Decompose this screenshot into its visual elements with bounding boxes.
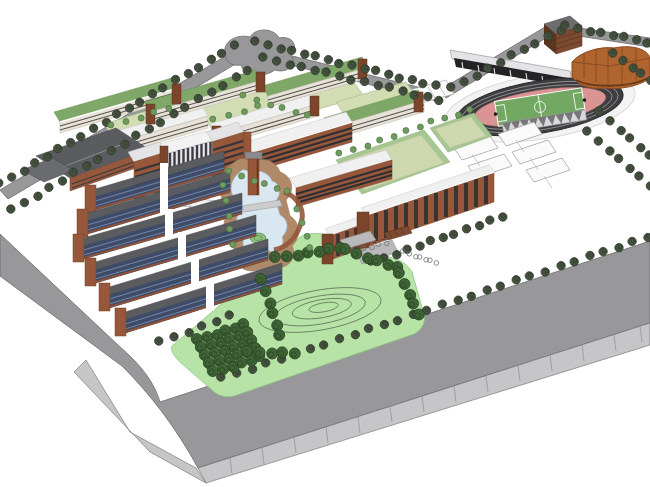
- perimeter-trees-nw-inner: [94, 155, 102, 163]
- park-hill-west-trees: [255, 274, 266, 285]
- field-border-trees-1: [350, 147, 356, 153]
- north-road-trees-outer: [385, 70, 393, 78]
- northeast-corner-trees: [620, 32, 628, 40]
- park-hill-north-trees-1: [269, 252, 280, 263]
- northeast-corner-trees: [597, 28, 605, 36]
- north-road-trees-outer: [277, 45, 285, 53]
- field-border-trees-1: [377, 137, 383, 143]
- park-hill-east-trees: [393, 268, 404, 279]
- north-road-trees-outer: [432, 81, 440, 89]
- northeast-corner-trees: [561, 21, 569, 29]
- perimeter-trees-nw-inner: [132, 131, 140, 139]
- courtyard-trees-2: [240, 92, 246, 98]
- perimeter-trees-nw-inner: [181, 103, 189, 111]
- main-road-trees: [380, 320, 388, 328]
- stair-tower: [172, 84, 181, 104]
- north-road-trees-inner: [259, 53, 267, 61]
- park-south-trees: [241, 346, 252, 357]
- north-road-trees-inner: [435, 96, 443, 104]
- field-border-trees-1: [403, 128, 409, 134]
- main-road-trees: [615, 244, 623, 252]
- courtyard-trees-2: [304, 112, 310, 118]
- northeast-corner-trees: [643, 39, 650, 47]
- perimeter-trees-nw-inner: [232, 73, 240, 81]
- northeast-corner-trees: [586, 27, 594, 35]
- dorm-end-block: [99, 283, 110, 311]
- perimeter-trees-nw-inner: [7, 205, 15, 213]
- perimeter-trees-nw-outer: [184, 69, 192, 77]
- main-road-trees: [483, 286, 491, 294]
- clock-tower-cap: [245, 152, 262, 159]
- park-hill-north-trees-1: [281, 251, 292, 262]
- north-road-trees-inner: [399, 87, 407, 95]
- row-gap: [206, 281, 214, 311]
- north-road-trees-outer: [251, 37, 259, 45]
- stadium-east-trees-1: [625, 134, 633, 142]
- north-road-trees-outer: [287, 46, 295, 54]
- perimeter-trees-nw-outer: [43, 153, 51, 161]
- perimeter-trees-nw-inner: [156, 118, 164, 126]
- park-hill-east-trees: [413, 309, 424, 320]
- pond-west-trees: [220, 182, 226, 188]
- bike-racks-east: [434, 261, 439, 266]
- field-border-trees-2: [428, 118, 434, 124]
- row-gap: [191, 256, 199, 286]
- main-road-trees: [557, 262, 565, 270]
- perimeter-trees-nw-outer: [20, 167, 28, 175]
- stadium-north-trees: [544, 32, 552, 40]
- perimeter-trees-nw-outer: [54, 144, 62, 152]
- northeast-corner-trees: [574, 24, 582, 32]
- stadium-north-trees: [460, 77, 468, 85]
- perimeter-trees-nw-inner: [20, 198, 28, 206]
- stadium-east-trees-1: [617, 126, 625, 134]
- stair-tower: [256, 72, 265, 92]
- plaza-trees-south: [239, 173, 245, 179]
- north-road-trees-inner: [385, 83, 393, 91]
- north-road-trees-inner: [424, 92, 432, 100]
- pond-west-trees: [227, 226, 233, 232]
- perimeter-trees-nw-inner: [58, 177, 66, 185]
- park-hill-east-trees: [399, 279, 410, 290]
- park-grove-row-5: [218, 364, 229, 375]
- park-grove-row-5: [207, 366, 218, 377]
- dorm-east-walkway-trees: [439, 233, 447, 241]
- pond-west-trees: [226, 213, 232, 219]
- perimeter-trees-nw-outer: [112, 110, 120, 118]
- perimeter-trees-nw-outer: [207, 55, 215, 63]
- campus-render: [0, 0, 650, 487]
- north-road-trees-inner: [410, 91, 418, 99]
- perimeter-trees-nw-inner: [121, 140, 129, 148]
- northeast-corner-trees: [610, 31, 618, 39]
- stadium-east-trees-2: [646, 182, 650, 190]
- park-west-edge-trees: [155, 337, 163, 345]
- park-hill-north-trees-2: [371, 255, 382, 266]
- courtyard-trees-2: [293, 110, 299, 116]
- perimeter-trees-nw-outer: [217, 49, 225, 57]
- east-boundary-trees: [629, 64, 637, 72]
- main-road-trees: [570, 258, 578, 266]
- perimeter-trees-nw-outer: [66, 138, 74, 146]
- stadium-north-trees: [531, 40, 539, 48]
- row-gap: [178, 232, 186, 262]
- north-road-trees-outer: [311, 52, 319, 60]
- park-hill-west-trees: [265, 298, 276, 309]
- north-road-trees-inner: [360, 77, 368, 85]
- stadium-east-trees-1: [645, 151, 650, 159]
- stadium-east-trees-1: [595, 107, 603, 115]
- north-road-trees-outer: [371, 66, 379, 74]
- north-road-trees-inner: [272, 57, 280, 65]
- north-road-trees-inner: [311, 66, 319, 74]
- northeast-corner-trees: [633, 36, 641, 44]
- field-border-trees-1: [391, 134, 397, 140]
- perimeter-trees-nw-inner: [69, 168, 77, 176]
- stadium-east-trees-2: [583, 127, 591, 135]
- stadium-east-trees-2: [626, 164, 634, 172]
- park-west-edge-trees: [225, 311, 233, 319]
- main-road-trees: [644, 233, 650, 241]
- park-hill-west-trees: [260, 286, 271, 297]
- park-west-edge-trees: [197, 322, 205, 330]
- north-road-trees-outer: [301, 50, 309, 58]
- park-hill-west-trees: [267, 308, 278, 319]
- field-border-trees-2: [442, 115, 448, 121]
- east-boundary-trees: [619, 56, 627, 64]
- stadium-east-trees-2: [614, 154, 622, 162]
- stadium-north-trees: [483, 64, 491, 72]
- entrance-plaza-canopy: [225, 30, 295, 75]
- stadium-east-trees-1: [637, 144, 645, 152]
- main-road-trees: [525, 272, 533, 280]
- pond-east-trees: [294, 206, 300, 212]
- plaza-trees-south: [261, 181, 267, 187]
- dorm-east-walkway-trees: [449, 230, 457, 238]
- dorm-east-walkway-trees: [475, 222, 483, 230]
- east-boundary-trees: [636, 69, 644, 77]
- north-road-trees-inner: [322, 68, 330, 76]
- north-road-trees-outer: [264, 41, 272, 49]
- main-road-trees: [599, 247, 607, 255]
- dorm-east-walkway-trees: [393, 251, 401, 259]
- park-grove-row-5: [236, 357, 247, 368]
- main-road-trees: [541, 268, 549, 276]
- courtyard-trees-3: [226, 112, 232, 118]
- courtyard-trees-1: [108, 122, 114, 128]
- dorm-east-walkway-trees: [499, 213, 507, 221]
- main-road-trees: [306, 345, 314, 353]
- perimeter-trees-nw-inner: [208, 88, 216, 96]
- stadium-north-trees: [520, 45, 528, 53]
- perimeter-trees-nw-outer: [77, 133, 85, 141]
- park-south-trees: [254, 347, 265, 358]
- dorm-east-walkway-trees: [486, 216, 494, 224]
- park-hill-north-trees-1: [323, 243, 334, 254]
- park-west-edge-trees: [170, 333, 178, 341]
- dorm-end-block: [85, 258, 96, 286]
- perimeter-trees-nw-inner: [243, 66, 251, 74]
- north-road-trees-inner: [297, 62, 305, 70]
- park-hill-north-trees-2: [351, 248, 362, 259]
- field-border-trees-2: [456, 112, 462, 118]
- courtyard-trees-2: [254, 97, 260, 103]
- main-road-trees: [319, 341, 327, 349]
- park-south-trees: [289, 348, 300, 359]
- courtyard-trees-1: [166, 106, 172, 112]
- perimeter-trees-nw-inner: [194, 94, 202, 102]
- park-south-trees: [267, 348, 278, 359]
- perimeter-trees-nw-outer: [31, 159, 39, 167]
- main-road-trees: [335, 334, 343, 342]
- perimeter-trees-nw-outer: [89, 124, 97, 132]
- plaza-trees-south: [226, 168, 232, 174]
- pond-east-trees: [299, 220, 305, 226]
- main-road-trees: [393, 317, 401, 325]
- north-road-trees-outer: [335, 59, 343, 67]
- courtyard-trees-3: [255, 103, 261, 109]
- stadium-east-trees-2: [594, 137, 602, 145]
- field-border-trees-2: [467, 107, 473, 113]
- main-road-trees: [248, 365, 256, 373]
- perimeter-trees-nw-inner: [145, 125, 153, 133]
- dorm-east-walkway-trees: [462, 225, 470, 233]
- north-road-trees-inner: [347, 76, 355, 84]
- park-hill-east-trees: [408, 298, 419, 309]
- main-road-trees: [351, 331, 359, 339]
- perimeter-trees-nw-outer: [125, 104, 133, 112]
- stadium-north-trees: [507, 51, 515, 59]
- stadium-east-trees-1: [606, 117, 614, 125]
- park-hill-west-trees: [272, 320, 283, 331]
- pond-west-trees: [223, 198, 229, 204]
- park-south-trees: [277, 347, 288, 358]
- main-road-trees: [496, 282, 504, 290]
- east-boundary-trees: [609, 49, 617, 57]
- perimeter-trees-nw-outer: [158, 84, 166, 92]
- plaza-trees-south: [251, 178, 257, 184]
- north-road-trees-outer: [361, 65, 369, 73]
- dorm-end-block: [77, 209, 88, 237]
- main-road-trees: [586, 251, 594, 259]
- north-road-trees-inner: [336, 72, 344, 80]
- main-road-trees: [454, 296, 462, 304]
- park-west-edge-trees: [213, 318, 221, 326]
- stadium-east-trees-2: [606, 147, 614, 155]
- pond-east-trees: [307, 245, 313, 251]
- main-road-trees: [512, 276, 520, 284]
- courtyard-trees-1: [123, 119, 129, 125]
- park-hill-north-trees-2: [339, 244, 350, 255]
- main-road-trees: [467, 292, 475, 300]
- stadium-east-trees-2: [635, 172, 643, 180]
- dorm-east-walkway-trees: [426, 236, 434, 244]
- north-road-trees-inner: [374, 81, 382, 89]
- courtyard-trees-2: [268, 102, 274, 108]
- pond-west-trees: [230, 242, 236, 248]
- perimeter-trees-nw-inner: [219, 82, 227, 90]
- field-border-trees-1: [417, 124, 423, 130]
- dorm-end-block: [115, 308, 126, 336]
- courtyard-trees-1: [151, 109, 157, 115]
- perimeter-trees-nw-outer: [194, 63, 202, 71]
- main-road-trees: [364, 324, 372, 332]
- dorm-east-walkway-trees: [416, 242, 424, 250]
- perimeter-trees-nw-outer: [0, 179, 3, 187]
- north-road-trees-outer: [419, 79, 427, 87]
- stadium-north-trees: [497, 59, 505, 67]
- perimeter-trees-nw-inner: [34, 192, 42, 200]
- courtyard-trees-2: [279, 105, 285, 111]
- north-road-trees-outer: [408, 75, 416, 83]
- north-road-trees-outer: [395, 74, 403, 82]
- courtyard-trees-3: [210, 116, 216, 122]
- perimeter-trees-nw-outer: [135, 98, 143, 106]
- main-road-trees: [628, 237, 636, 245]
- north-road-trees-inner: [286, 61, 294, 69]
- main-road-trees: [438, 300, 446, 308]
- perimeter-trees-nw-inner: [45, 183, 53, 191]
- perimeter-trees-nw-inner: [83, 162, 91, 170]
- field-border-trees-1: [336, 150, 342, 156]
- plaza-trees-south: [284, 188, 290, 194]
- perimeter-trees-nw-outer: [8, 173, 16, 181]
- row-gap: [165, 209, 173, 239]
- stadium-north-trees: [473, 72, 481, 80]
- courtyard-trees-1: [138, 115, 144, 121]
- park-hill-west-trees: [274, 330, 285, 341]
- perimeter-trees-nw-outer: [148, 90, 156, 98]
- courtyard-trees-3: [242, 109, 248, 115]
- north-road-trees-outer: [324, 55, 332, 63]
- perimeter-trees-nw-outer: [171, 75, 179, 83]
- perimeter-trees-nw-outer: [230, 41, 238, 49]
- north-road-trees-outer: [348, 61, 356, 69]
- field-border-trees-1: [365, 143, 371, 149]
- plaza-trees-south: [274, 186, 280, 192]
- stair-tower: [310, 96, 319, 116]
- perimeter-trees-nw-inner: [107, 146, 115, 154]
- pond-east-trees: [304, 233, 310, 239]
- stadium-north-trees: [447, 83, 455, 91]
- dorm-end-block: [73, 234, 84, 262]
